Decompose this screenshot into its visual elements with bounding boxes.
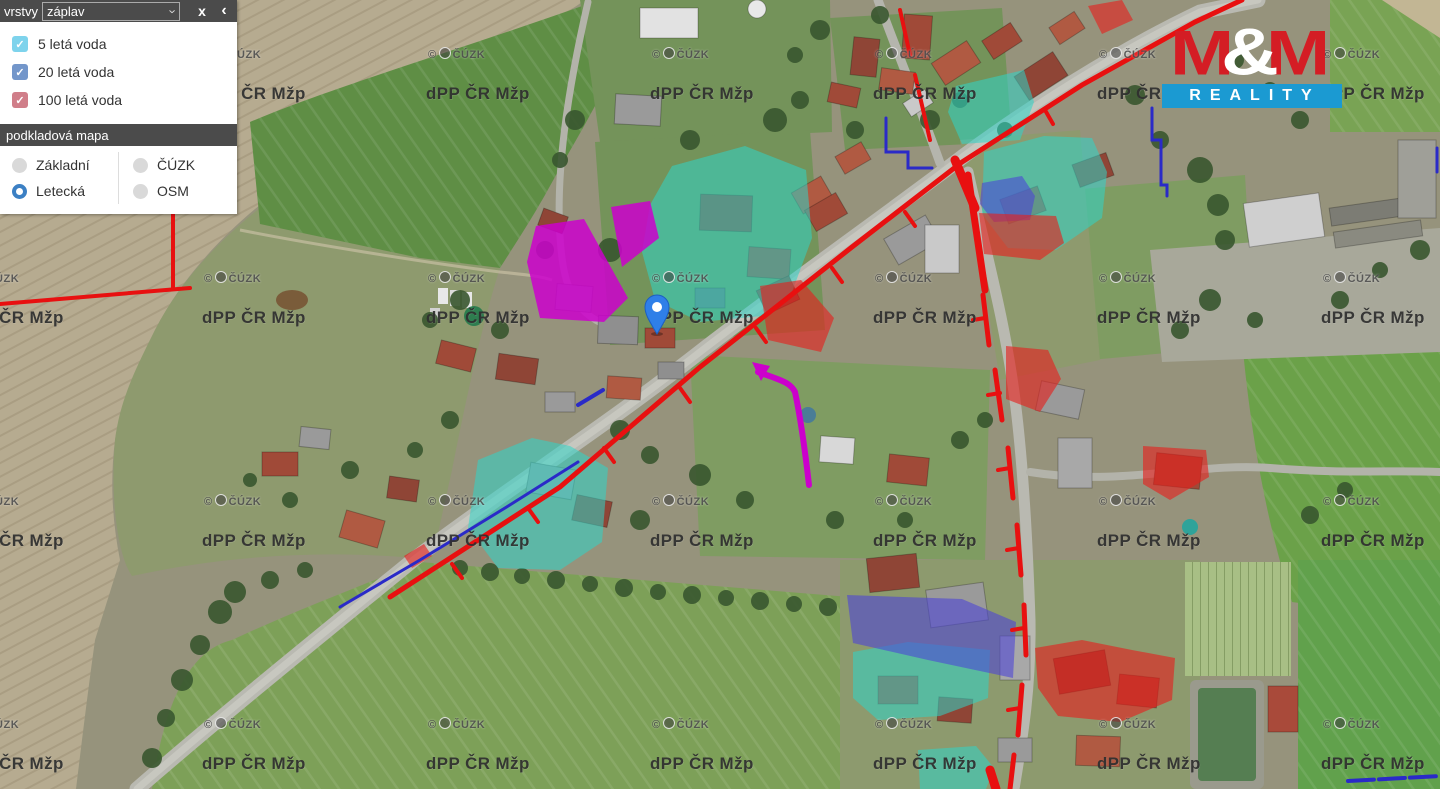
layer-row-5yr[interactable]: ✓ 5 letá voda: [12, 30, 237, 58]
layer-label-100yr: 100 letá voda: [38, 92, 122, 108]
close-button[interactable]: x: [193, 3, 211, 19]
checkbox-100yr[interactable]: ✓: [12, 92, 28, 108]
panel-header: vrstvy záplav › x ‹: [0, 0, 237, 22]
basemap-option-label: ČÚZK: [157, 157, 195, 173]
basemap-section-header: podkladová mapa: [0, 124, 237, 146]
radio-zakladni[interactable]: [12, 158, 27, 173]
layer-row-100yr[interactable]: ✓ 100 letá voda: [12, 86, 237, 114]
layer-label-20yr: 20 letá voda: [38, 64, 114, 80]
logo-reality-text: REALITY: [1162, 84, 1342, 108]
radio-cuzk[interactable]: [133, 158, 148, 173]
layer-select[interactable]: záplav ›: [42, 2, 180, 21]
basemap-option-zakladni[interactable]: Základní: [12, 152, 118, 178]
location-pin[interactable]: [642, 294, 672, 336]
basemap-option-osm[interactable]: OSM: [133, 178, 236, 204]
basemap-option-letecka[interactable]: Letecká: [12, 178, 118, 204]
checkbox-5yr[interactable]: ✓: [12, 36, 28, 52]
layer-label-5yr: 5 letá voda: [38, 36, 107, 52]
basemap-label: podkladová mapa: [6, 128, 109, 143]
layer-select-value: záplav: [47, 4, 85, 19]
layers-label: vrstvy: [4, 4, 38, 19]
radio-osm[interactable]: [133, 184, 148, 199]
basemap-option-label: Základní: [36, 157, 90, 173]
basemap-option-label: Letecká: [36, 183, 85, 199]
radio-letecka-selected[interactable]: [12, 184, 27, 199]
checkbox-20yr[interactable]: ✓: [12, 64, 28, 80]
flood-layer-list: ✓ 5 letá voda ✓ 20 letá voda ✓ 100 letá …: [0, 22, 237, 124]
logo-ampersand: &: [1221, 15, 1272, 88]
layers-panel: vrstvy záplav › x ‹ ✓ 5 letá voda ✓ 20 l…: [0, 0, 237, 214]
mm-reality-logo: M&M REALITY: [1162, 26, 1342, 114]
chevron-down-icon: ›: [165, 9, 180, 13]
map-viewport[interactable]: ©ČÚZKdPP ČR Mžp©ČÚZKdPP ČR Mžp©ČÚZKdPP Č…: [0, 0, 1440, 789]
basemap-options: Základní Letecká ČÚZK OSM: [0, 146, 237, 214]
basemap-option-cuzk[interactable]: ČÚZK: [133, 152, 236, 178]
collapse-button[interactable]: ‹: [215, 2, 233, 20]
layer-row-20yr[interactable]: ✓ 20 letá voda: [12, 58, 237, 86]
basemap-option-label: OSM: [157, 183, 189, 199]
logo-mm-text: M&M: [1170, 26, 1350, 78]
